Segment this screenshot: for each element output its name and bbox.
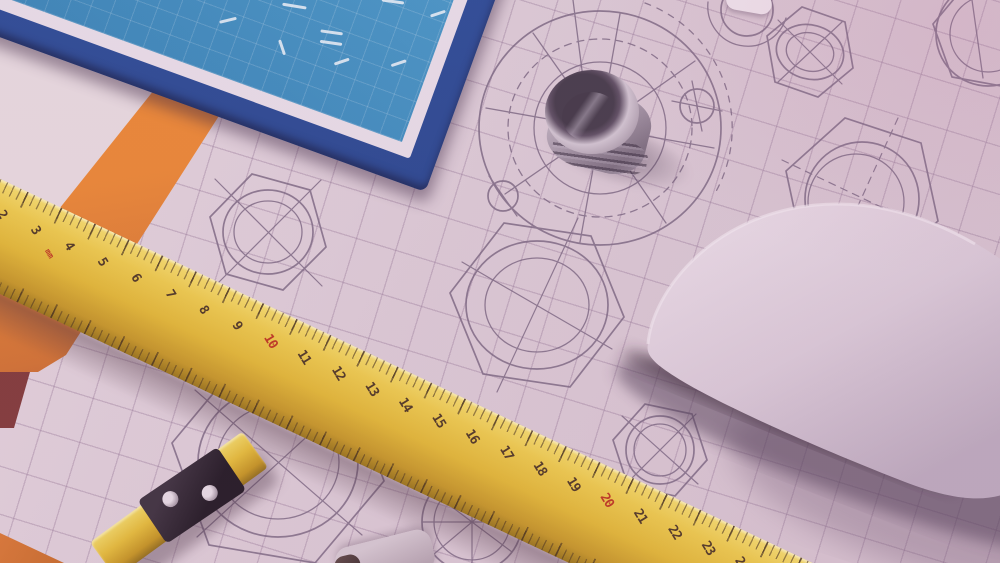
hinge-rivet xyxy=(159,488,181,510)
nut-reflection xyxy=(562,92,620,142)
photo-scene: 23456789101112131415161718192021222324mm xyxy=(0,0,1000,563)
ruler-number: 12 xyxy=(325,359,350,387)
ruler-number: 17 xyxy=(493,439,518,467)
ruler-number: 5 xyxy=(89,248,114,276)
ruler-number: 4 xyxy=(56,232,81,260)
ruler-number: 7 xyxy=(157,280,182,308)
ruler-number: 24 xyxy=(728,550,753,563)
ruler-number: 8 xyxy=(190,296,215,324)
hinge-rivet xyxy=(199,482,221,504)
ruler-number: 9 xyxy=(224,311,249,339)
ruler-number: 10 xyxy=(258,327,283,355)
ruler-number: 2 xyxy=(0,200,14,228)
ruler-number: 6 xyxy=(123,264,148,292)
ruler-number: 16 xyxy=(459,423,484,451)
ruler-number: 20 xyxy=(594,486,619,514)
ruler-number: 14 xyxy=(392,391,417,419)
ruler-number: 19 xyxy=(560,470,585,498)
gray-object-tip xyxy=(332,552,364,563)
ruler-number: 23 xyxy=(695,534,720,562)
ruler-number: 11 xyxy=(291,343,316,371)
ruler-number: 22 xyxy=(661,518,686,546)
ruler-number: 21 xyxy=(628,502,653,530)
ruler-number: 18 xyxy=(527,455,552,483)
ruler-number: 15 xyxy=(426,407,451,435)
ruler-number: 13 xyxy=(358,375,383,403)
ruler-unit-label: mm xyxy=(43,247,56,260)
ruler-number: 3 xyxy=(22,216,47,244)
